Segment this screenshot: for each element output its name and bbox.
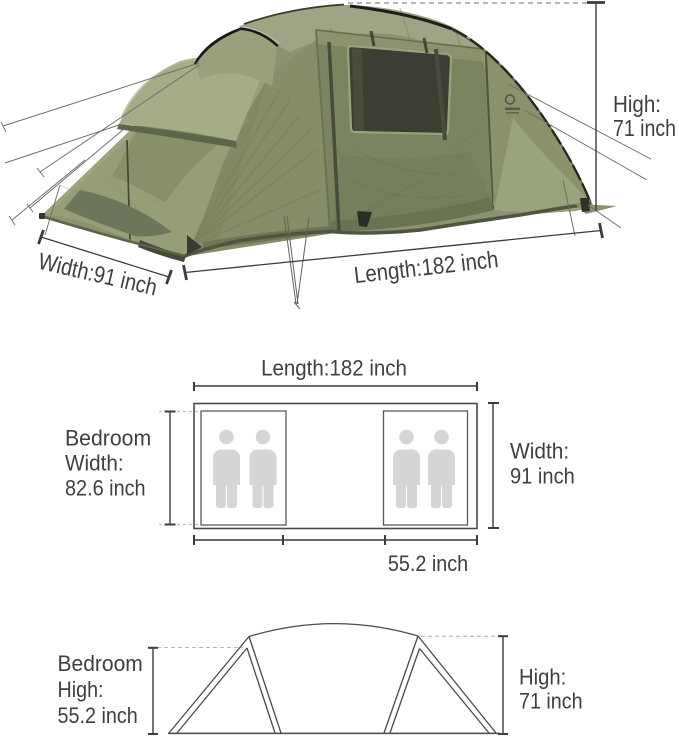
svg-text:55.2 inch: 55.2 inch [388, 551, 468, 576]
svg-text:Width:91 inch: Width:91 inch [36, 248, 160, 301]
svg-text:71 inch: 71 inch [519, 689, 583, 714]
svg-text:Width:: Width: [65, 451, 124, 476]
svg-text:55.2 inch: 55.2 inch [58, 703, 138, 728]
svg-text:High:: High: [613, 91, 661, 117]
svg-text:High:: High: [519, 665, 566, 690]
svg-text:82.6 inch: 82.6 inch [65, 476, 146, 501]
svg-text:Bedroom: Bedroom [58, 651, 143, 676]
svg-text:High:: High: [58, 677, 104, 702]
svg-text:Length:182 inch: Length:182 inch [261, 356, 407, 381]
svg-text:Length:182 inch: Length:182 inch [353, 246, 500, 288]
svg-text:Width:: Width: [510, 439, 569, 464]
svg-text:91 inch: 91 inch [510, 464, 575, 489]
svg-text:71 inch: 71 inch [613, 115, 676, 141]
svg-text:Bedroom: Bedroom [65, 426, 151, 451]
